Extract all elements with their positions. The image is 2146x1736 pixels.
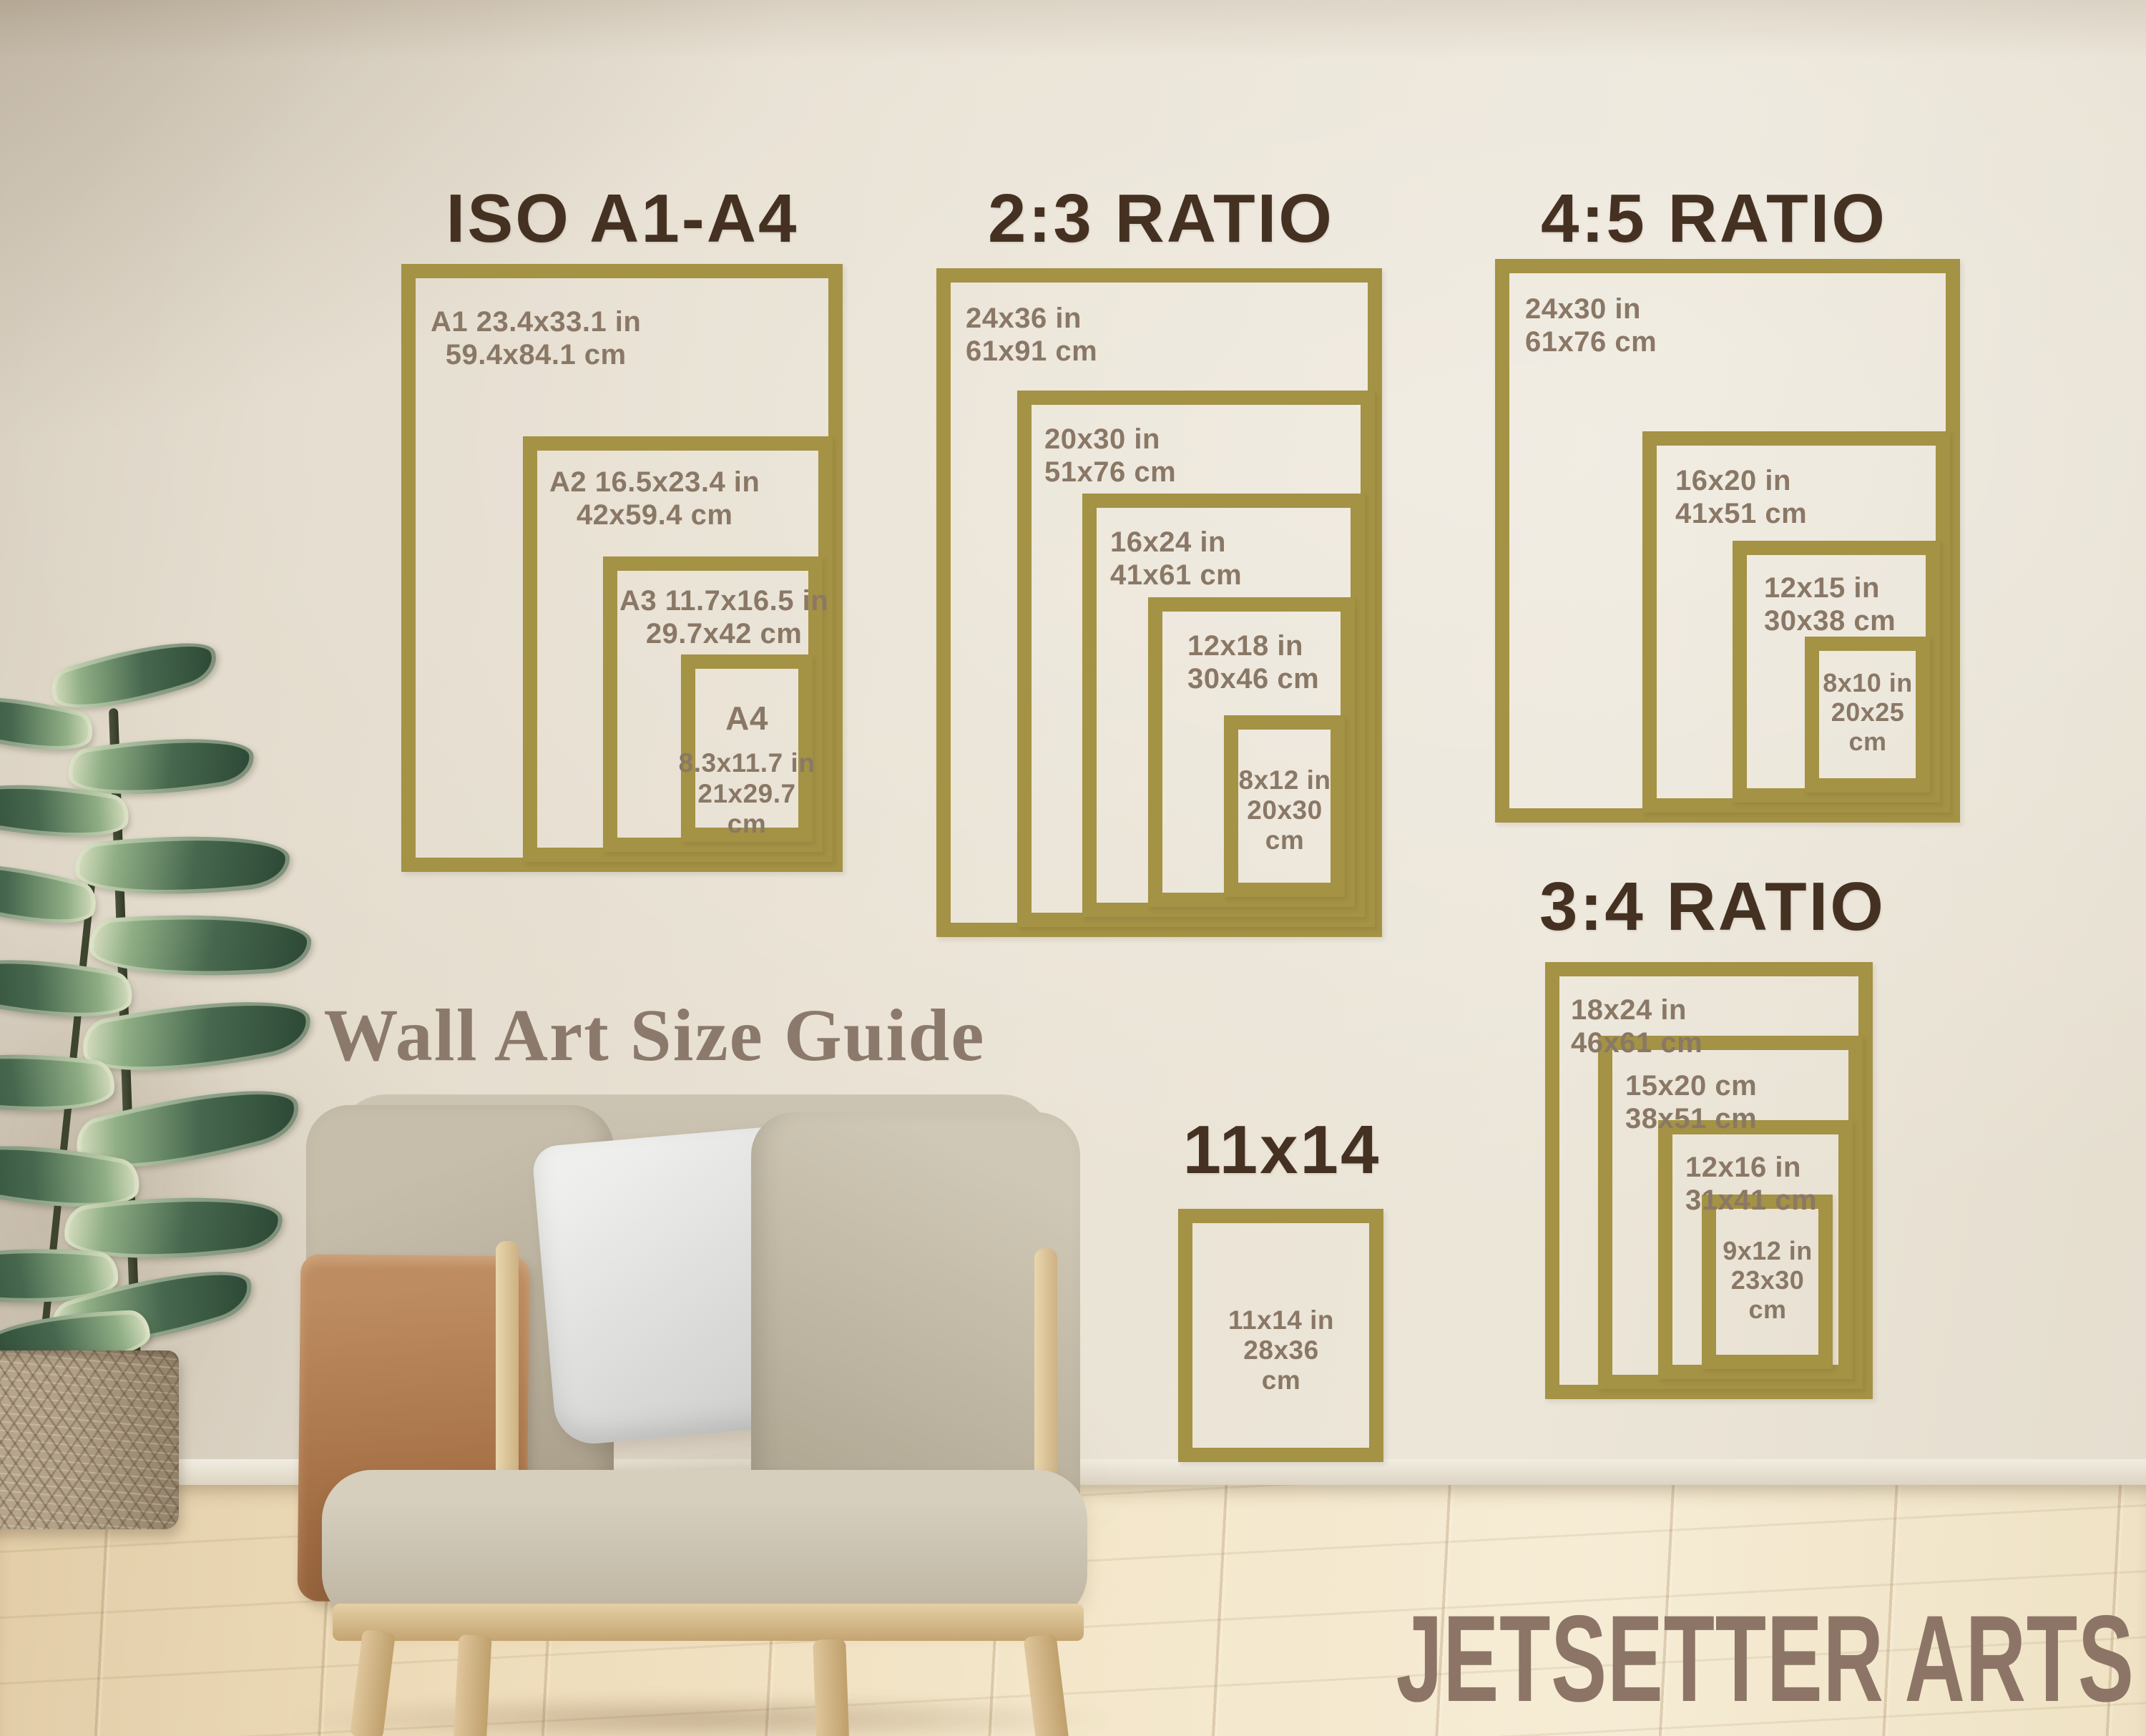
size-cm: 23x30	[1723, 1265, 1813, 1295]
size-cm-unit: cm	[679, 809, 815, 839]
chair-seat-cushion	[322, 1470, 1087, 1624]
section-title-ratio-3-4: 3:4 RATIO	[1539, 873, 1886, 941]
size-in: 16x24 in	[1110, 526, 1242, 559]
plant-leaf	[72, 823, 293, 908]
size-cm: 46x61 cm	[1571, 1027, 1702, 1060]
frame-label-9x12: 9x12 in 23x30 cm	[1723, 1236, 1813, 1324]
chair-leg-front-right	[813, 1639, 851, 1736]
size-cm: 29.7x42 cm	[619, 618, 828, 651]
frame-label-a1: A1 23.4x33.1 in 59.4x84.1 cm	[431, 306, 641, 371]
size-cm: 42x59.4 cm	[549, 499, 760, 532]
plant-woven-basket	[0, 1350, 179, 1529]
size-cm: 41x51 cm	[1675, 498, 1807, 531]
size-in: 24x30 in	[1525, 293, 1657, 326]
chair-floor-shadow	[286, 1694, 1116, 1736]
size-in: 9x12 in	[1723, 1236, 1813, 1265]
section-title-ratio-2-3: 2:3 RATIO	[988, 185, 1334, 253]
chair-leg-front-left	[451, 1634, 491, 1736]
frame-label-16x24: 16x24 in 41x61 cm	[1110, 526, 1242, 592]
size-in: A2 16.5x23.4 in	[549, 466, 760, 499]
size-section-ratio-4-5: 4:5 RATIO 24x30 in 61x76 cm 16x20 in 41x…	[1474, 172, 1989, 851]
size-cm: 30x46 cm	[1187, 663, 1319, 696]
frame-label-16x20: 16x20 in 41x51 cm	[1675, 465, 1807, 530]
size-cm-unit: cm	[1723, 1295, 1813, 1324]
frame-label-15x20: 15x20 cm 38x51 cm	[1625, 1070, 1757, 1135]
size-cm: 30x38 cm	[1764, 605, 1896, 638]
frame-label-a4: A4 8.3x11.7 in 21x29.7 cm	[679, 700, 815, 839]
size-in: 8.3x11.7 in	[679, 748, 815, 778]
frame-label-24x30: 24x30 in 61x76 cm	[1525, 293, 1657, 358]
size-cm-unit: cm	[1823, 727, 1913, 756]
frame-label-12x15: 12x15 in 30x38 cm	[1764, 572, 1896, 637]
size-cm: 28x36	[1228, 1335, 1334, 1365]
section-title-11x14: 11x14	[1183, 1116, 1381, 1185]
size-in: A3 11.7x16.5 in	[619, 585, 828, 618]
size-in: 20x30 in	[1044, 423, 1176, 456]
frame-label-12x16: 12x16 in 31x41 cm	[1685, 1152, 1817, 1217]
size-cm: 61x91 cm	[966, 335, 1097, 368]
armchair	[293, 1073, 1094, 1736]
frame-label-a2: A2 16.5x23.4 in 42x59.4 cm	[549, 466, 760, 531]
size-cm: 41x61 cm	[1110, 559, 1242, 592]
size-in: 12x18 in	[1187, 630, 1319, 663]
size-section-ratio-2-3: 2:3 RATIO 24x36 in 61x91 cm 20x30 in 51x…	[916, 172, 1416, 951]
frame-label-a3: A3 11.7x16.5 in 29.7x42 cm	[619, 585, 828, 650]
size-in: A1 23.4x33.1 in	[431, 306, 641, 339]
frame-label-24x36: 24x36 in 61x91 cm	[966, 303, 1097, 368]
frame-label-18x24: 18x24 in 46x61 cm	[1571, 994, 1702, 1059]
size-cm: 21x29.7	[679, 779, 815, 809]
size-in: 24x36 in	[966, 303, 1097, 335]
frame-label-8x10: 8x10 in 20x25 cm	[1823, 668, 1913, 756]
size-in: 18x24 in	[1571, 994, 1702, 1027]
size-cm: 20x25	[1823, 697, 1913, 727]
size-in: 12x15 in	[1764, 572, 1896, 605]
size-in: 16x20 in	[1675, 465, 1807, 498]
frame-label-20x30: 20x30 in 51x76 cm	[1044, 423, 1176, 489]
wall-art-size-guide-photo: ISO A1-A4 A1 23.4x33.1 in 59.4x84.1 cm A…	[0, 0, 2146, 1736]
size-in: 8x12 in	[1239, 765, 1331, 795]
size-section-ratio-3-4: 3:4 RATIO 18x24 in 46x61 cm 15x20 cm 38x…	[1524, 865, 1910, 1445]
size-cm: 59.4x84.1 cm	[431, 339, 641, 372]
size-in: 11x14 in	[1228, 1305, 1334, 1335]
size-cm: 61x76 cm	[1525, 326, 1657, 359]
size-section-iso-a1-a4: ISO A1-A4 A1 23.4x33.1 in 59.4x84.1 cm A…	[386, 172, 873, 894]
size-cm: 20x30	[1239, 795, 1331, 825]
size-cm-alt: 15x20 cm	[1625, 1070, 1757, 1103]
chair-wood-rail	[333, 1604, 1084, 1641]
section-title-iso-a1-a4: ISO A1-A4	[446, 185, 799, 253]
size-cm-unit: cm	[1228, 1365, 1334, 1396]
size-in: 12x16 in	[1685, 1152, 1817, 1185]
brand-watermark: JETSETTER ARTS	[1396, 1597, 2135, 1720]
frame-label-8x12: 8x12 in 20x30 cm	[1239, 765, 1331, 856]
section-title-ratio-4-5: 4:5 RATIO	[1541, 185, 1887, 253]
size-cm: 38x51 cm	[1625, 1103, 1757, 1136]
size-cm: 31x41 cm	[1685, 1185, 1817, 1217]
guide-title: Wall Art Size Guide	[324, 993, 986, 1078]
frame-label-12x18: 12x18 in 30x46 cm	[1187, 630, 1319, 695]
potted-plant	[0, 629, 286, 1552]
size-cm-unit: cm	[1239, 825, 1331, 855]
size-in: 8x10 in	[1823, 668, 1913, 697]
size-cm: 51x76 cm	[1044, 456, 1176, 489]
size-name: A4	[679, 700, 815, 737]
frame-label-11x14: 11x14 in 28x36 cm	[1228, 1305, 1334, 1396]
size-section-11x14: 11x14 11x14 in 28x36 cm	[1145, 1105, 1402, 1477]
